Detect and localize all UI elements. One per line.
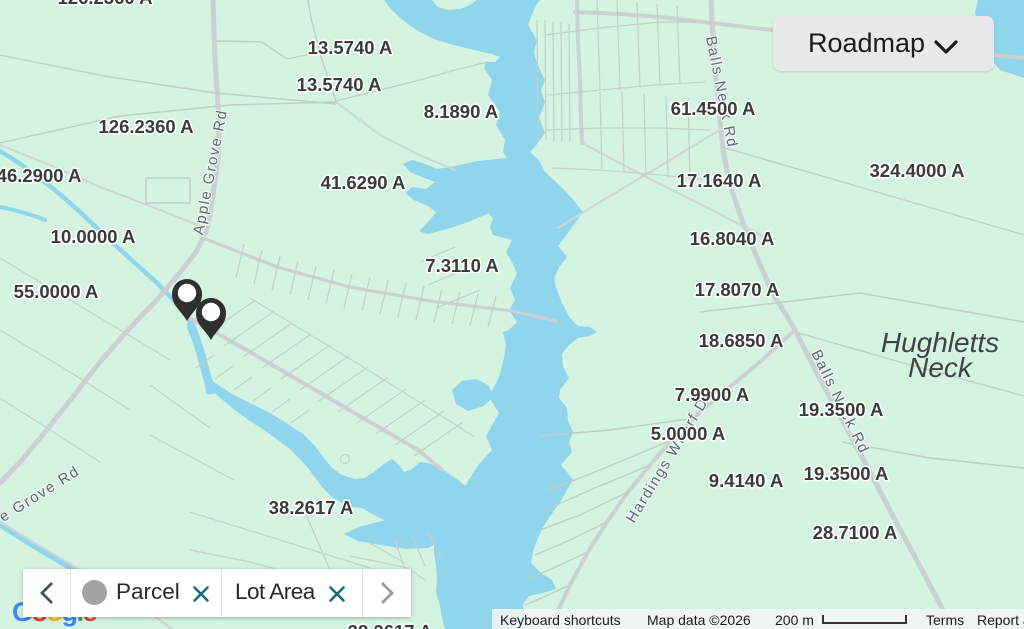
svg-text:9.4140 A: 9.4140 A: [709, 470, 783, 491]
svg-text:5.0000 A: 5.0000 A: [651, 423, 725, 444]
svg-text:19.3500 A: 19.3500 A: [799, 399, 884, 420]
svg-text:61.4500 A: 61.4500 A: [671, 98, 756, 119]
svg-text:13.5740 A: 13.5740 A: [297, 74, 382, 95]
svg-text:46.2900 A: 46.2900 A: [0, 165, 81, 186]
svg-text:38.2617 A: 38.2617 A: [269, 497, 354, 518]
svg-text:17.1640 A: 17.1640 A: [677, 170, 762, 191]
svg-text:8.1890 A: 8.1890 A: [424, 101, 498, 122]
svg-text:10.0000 A: 10.0000 A: [51, 226, 136, 247]
svg-text:Neck: Neck: [908, 352, 974, 383]
svg-text:41.6290 A: 41.6290 A: [321, 172, 406, 193]
svg-text:28.7100 A: 28.7100 A: [813, 522, 898, 543]
svg-text:324.4000 A: 324.4000 A: [870, 160, 965, 181]
svg-text:18.6850 A: 18.6850 A: [699, 330, 784, 351]
svg-text:16.8040 A: 16.8040 A: [690, 228, 775, 249]
svg-text:17.8070 A: 17.8070 A: [695, 279, 780, 300]
svg-text:55.0000 A: 55.0000 A: [14, 281, 99, 302]
svg-text:38.2617 A: 38.2617 A: [348, 621, 433, 629]
svg-text:126.2360 A: 126.2360 A: [99, 116, 194, 137]
svg-text:126.2360 A: 126.2360 A: [58, 0, 153, 8]
svg-text:13.5740 A: 13.5740 A: [308, 37, 393, 58]
svg-text:7.9900 A: 7.9900 A: [675, 384, 749, 405]
svg-text:7.3110 A: 7.3110 A: [425, 255, 498, 276]
svg-text:19.3500 A: 19.3500 A: [804, 463, 889, 484]
